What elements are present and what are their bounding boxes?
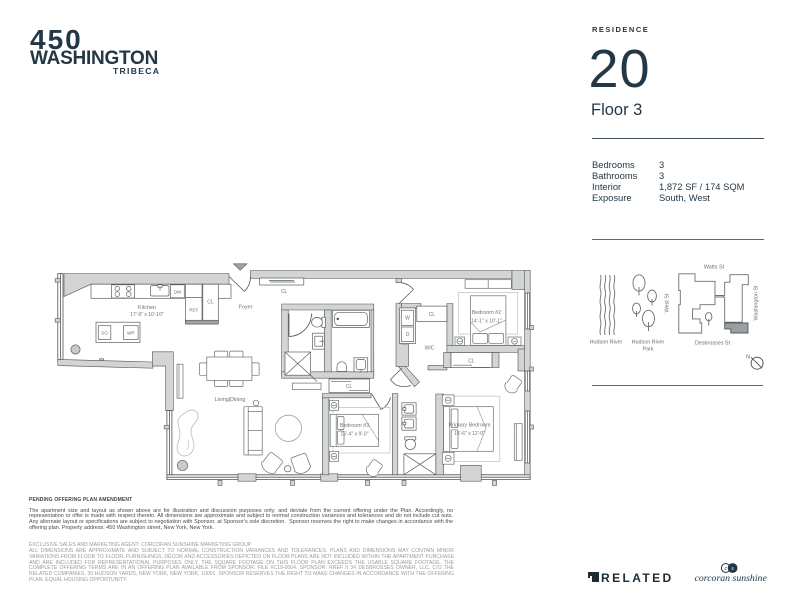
svg-text:SO: SO <box>101 331 108 336</box>
svg-text:Bedroom #2: Bedroom #2 <box>472 310 501 316</box>
svg-text:West St: West St <box>665 293 671 312</box>
svg-text:CL: CL <box>281 289 288 295</box>
svg-text:Living|Dining: Living|Dining <box>215 397 246 403</box>
svg-text:Hudson River: Hudson River <box>632 339 665 345</box>
svg-text:14'-1" x 10'-1": 14'-1" x 10'-1" <box>471 319 502 325</box>
svg-text:W: W <box>405 316 410 322</box>
svg-text:REF: REF <box>189 308 198 313</box>
svg-text:Watts St: Watts St <box>704 264 725 270</box>
svg-text:D: D <box>406 332 410 338</box>
svg-text:Bedroom #3: Bedroom #3 <box>340 423 369 429</box>
svg-text:Hudson River: Hudson River <box>590 339 623 345</box>
svg-text:15'-6" x 12'-0": 15'-6" x 12'-0" <box>454 431 485 437</box>
svg-text:17'-9" x 10'-10": 17'-9" x 10'-10" <box>130 312 164 318</box>
svg-text:DW: DW <box>174 290 182 295</box>
svg-text:Foyer: Foyer <box>239 305 253 311</box>
svg-text:Park: Park <box>642 346 653 352</box>
svg-text:CL: CL <box>429 312 436 318</box>
svg-text:WIC: WIC <box>425 346 435 352</box>
svg-text:CL: CL <box>207 300 214 306</box>
svg-text:WR: WR <box>127 331 135 336</box>
svg-text:Washington St: Washington St <box>754 285 760 320</box>
svg-text:Primary Bedroom: Primary Bedroom <box>449 423 491 429</box>
svg-text:N: N <box>746 355 750 361</box>
svg-text:CL: CL <box>346 384 353 390</box>
svg-text:15'-4" x 9'-0": 15'-4" x 9'-0" <box>341 432 369 438</box>
svg-text:CL: CL <box>468 359 475 365</box>
svg-text:Desbrosses St: Desbrosses St <box>695 340 731 346</box>
svg-text:Kitchen: Kitchen <box>138 305 156 311</box>
